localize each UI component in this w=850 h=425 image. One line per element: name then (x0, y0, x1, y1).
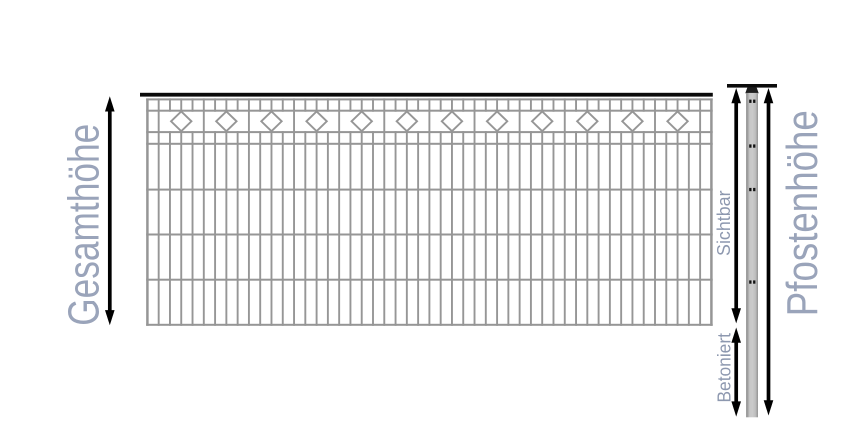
svg-text:Pfostenhöhe: Pfostenhöhe (778, 110, 827, 316)
svg-text:Sichtbar: Sichtbar (714, 190, 734, 256)
svg-text:Gesamthöhe: Gesamthöhe (60, 124, 109, 326)
svg-text:Betoniert: Betoniert (714, 333, 734, 403)
